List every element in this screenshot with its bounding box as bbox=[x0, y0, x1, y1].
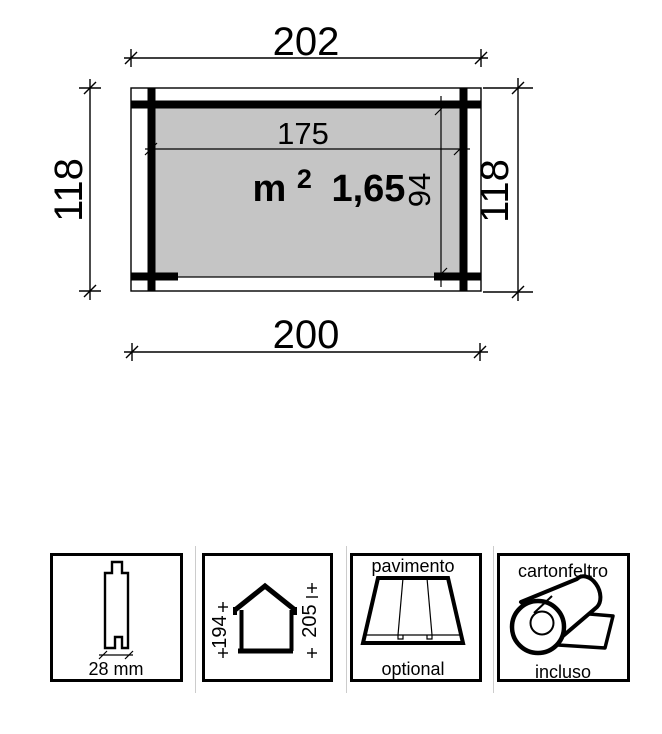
floor-panel-icon: pavimento optional bbox=[353, 556, 479, 679]
dimension-overall-width: 202 bbox=[124, 20, 488, 67]
floor-plan-drawing: 202 200 118 118 bbox=[0, 0, 662, 545]
feature-tile-floor-optional: pavimento optional bbox=[350, 553, 482, 682]
eaves-height-label: 194 bbox=[209, 615, 231, 648]
wall-right bbox=[460, 88, 468, 291]
house-outline bbox=[235, 586, 295, 651]
felt-title-label: cartonfeltro bbox=[518, 561, 608, 581]
tongue-groove-plank-profile bbox=[105, 562, 128, 648]
dimension-inner-depth-label: 94 bbox=[402, 173, 437, 207]
dimension-depth-left: 118 bbox=[47, 79, 101, 300]
dimension-depth-right-label: 118 bbox=[473, 159, 517, 223]
area-unit: m bbox=[253, 168, 287, 210]
ridge-height-label: 205 bbox=[299, 604, 321, 637]
plank-dimension bbox=[99, 651, 133, 659]
area-value: 1,65 bbox=[331, 168, 405, 210]
feature-tile-plank-thickness: 28 mm bbox=[50, 553, 183, 682]
feature-tile-house-heights: 194 205 bbox=[202, 553, 333, 682]
feature-tile-felt-included: cartonfeltro incluso bbox=[497, 553, 630, 682]
technical-drawing-page: 202 200 118 118 bbox=[0, 0, 662, 734]
dimension-base-width: 200 bbox=[124, 313, 488, 361]
roof-line bbox=[235, 586, 295, 610]
floor-title-label: pavimento bbox=[371, 556, 454, 576]
house-section-icon: 194 205 bbox=[205, 556, 330, 679]
dimension-depth-left-label: 118 bbox=[47, 158, 91, 222]
plank-profile-icon: 28 mm bbox=[53, 556, 180, 679]
area-exponent: 2 bbox=[297, 164, 312, 194]
felt-roll-icon: cartonfeltro incluso bbox=[500, 556, 627, 679]
wall-back bbox=[131, 101, 481, 109]
plank-thickness-label: 28 mm bbox=[88, 659, 143, 679]
wall-left bbox=[148, 88, 156, 291]
tile-separator bbox=[346, 546, 347, 693]
dimension-base-width-label: 200 bbox=[273, 313, 340, 357]
wall-front-left-segment bbox=[131, 273, 178, 281]
tile-separator bbox=[493, 546, 494, 693]
dimension-depth-right: 118 bbox=[473, 78, 533, 301]
felt-note-label: incluso bbox=[535, 662, 591, 679]
tile-separator bbox=[195, 546, 196, 693]
floor-note-label: optional bbox=[381, 659, 444, 679]
dimension-inner-width-label: 175 bbox=[277, 116, 329, 151]
floor-panel-outline bbox=[363, 578, 463, 643]
dimension-overall-width-label: 202 bbox=[273, 20, 340, 64]
